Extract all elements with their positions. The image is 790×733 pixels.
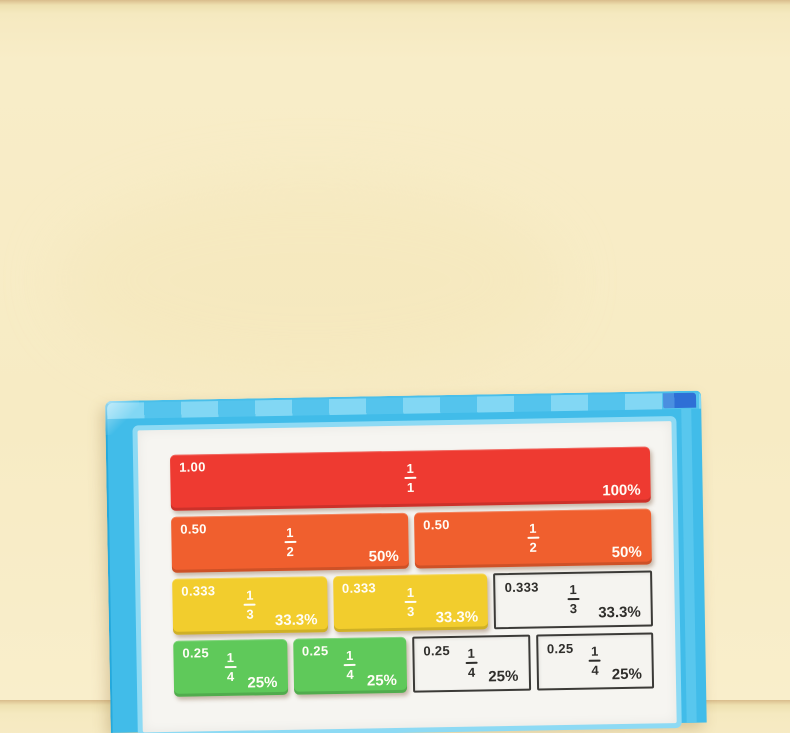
fraction-grid: 1.00 1 1 100% 0.50 1 2	[170, 446, 654, 702]
fraction-label: 1 3	[567, 583, 580, 615]
fraction-denominator: 3	[570, 602, 577, 616]
decimal-label: 0.50	[180, 521, 207, 536]
fraction-label: 1 2	[527, 522, 540, 554]
row-halves: 0.50 1 2 50% 0.50 1 2 50%	[171, 508, 652, 572]
row-whole: 1.00 1 1 100%	[170, 446, 651, 510]
fraction-label: 1 4	[224, 651, 237, 683]
fraction-bar	[284, 541, 296, 543]
fraction-numerator: 1	[467, 647, 474, 661]
decimal-label: 0.333	[342, 580, 376, 596]
board-checker-band	[107, 393, 701, 419]
board-page: 1.00 1 1 100% 0.50 1 2	[138, 421, 677, 732]
fraction-denominator: 4	[591, 663, 598, 677]
decimal-label: 0.25	[182, 645, 209, 660]
row-quarters: 0.25 1 4 25% 0.25 1 4 25%	[173, 632, 654, 696]
percent-label: 33.3%	[435, 609, 478, 627]
fraction-numerator: 1	[569, 583, 576, 597]
fraction-tile-1-2-b[interactable]: 0.50 1 2 50%	[414, 508, 652, 568]
fraction-bar	[567, 598, 579, 600]
fraction-tile-1-3-b[interactable]: 0.333 1 3 33.3%	[333, 573, 489, 632]
fraction-bar	[589, 660, 601, 662]
fraction-bar	[404, 477, 416, 479]
fraction-tile-1-4-a[interactable]: 0.25 1 4 25%	[173, 639, 287, 697]
decimal-label: 0.25	[423, 643, 450, 658]
fraction-label: 1 4	[465, 647, 478, 679]
percent-label: 25%	[367, 672, 397, 690]
fraction-bar	[405, 601, 417, 603]
decimal-label: 1.00	[179, 459, 206, 474]
fraction-denominator: 4	[468, 665, 475, 679]
photo-canvas: { "scene": { "subject": "Magnetic fracti…	[0, 0, 790, 700]
printed-cell-1-4-b: 0.25 1 4 25%	[536, 632, 654, 690]
fraction-bar	[465, 662, 477, 664]
fraction-denominator: 4	[346, 668, 353, 682]
percent-label: 50%	[612, 544, 642, 562]
fraction-label: 1 3	[244, 589, 257, 621]
percent-label: 50%	[369, 548, 399, 566]
fraction-denominator: 3	[407, 604, 414, 618]
fraction-numerator: 1	[286, 526, 293, 540]
fraction-bar	[244, 604, 256, 606]
percent-label: 100%	[602, 482, 641, 500]
fraction-label: 1 4	[589, 645, 602, 677]
fraction-numerator: 1	[246, 589, 253, 603]
fraction-numerator: 1	[227, 651, 234, 665]
fraction-bar	[224, 666, 236, 668]
percent-label: 33.3%	[598, 604, 641, 622]
fraction-label: 1 3	[404, 586, 417, 618]
board-corner-patch	[663, 393, 696, 409]
fraction-board: 1.00 1 1 100% 0.50 1 2	[105, 391, 707, 733]
board-edge-sheen	[681, 409, 696, 723]
fraction-denominator: 4	[227, 670, 234, 684]
percent-label: 25%	[612, 666, 642, 684]
printed-cell-1-3: 0.333 1 3 33.3%	[493, 570, 653, 629]
fraction-numerator: 1	[407, 586, 414, 600]
fraction-bar	[344, 664, 356, 666]
decimal-label: 0.333	[505, 579, 539, 595]
fraction-denominator: 3	[246, 607, 253, 621]
printed-cell-1-4-a: 0.25 1 4 25%	[412, 635, 530, 693]
fraction-numerator: 1	[529, 522, 536, 536]
fraction-tile-1-4-b[interactable]: 0.25 1 4 25%	[293, 637, 407, 695]
fraction-label: 1 4	[344, 649, 357, 681]
background-shading	[60, 180, 560, 380]
fraction-denominator: 2	[529, 540, 536, 554]
decimal-label: 0.25	[302, 643, 329, 658]
fraction-numerator: 1	[346, 649, 353, 663]
percent-label: 25%	[488, 668, 518, 686]
fraction-tile-1-3-a[interactable]: 0.333 1 3 33.3%	[172, 576, 328, 635]
fraction-tile-1-2-a[interactable]: 0.50 1 2 50%	[171, 513, 409, 573]
fraction-numerator: 1	[406, 462, 413, 476]
fraction-tile-1-1[interactable]: 1.00 1 1 100%	[170, 446, 651, 510]
decimal-label: 0.25	[547, 641, 574, 656]
row-thirds: 0.333 1 3 33.3% 0.333 1 3 33.3%	[172, 570, 653, 634]
fraction-denominator: 1	[407, 480, 414, 494]
fraction-label: 1 2	[284, 526, 297, 558]
fraction-numerator: 1	[591, 645, 598, 659]
fraction-label: 1 1	[404, 462, 417, 494]
percent-label: 25%	[247, 674, 277, 692]
decimal-label: 0.333	[181, 583, 215, 599]
fraction-denominator: 2	[286, 545, 293, 559]
fraction-bar	[527, 537, 539, 539]
percent-label: 33.3%	[275, 611, 318, 629]
decimal-label: 0.50	[423, 517, 450, 532]
